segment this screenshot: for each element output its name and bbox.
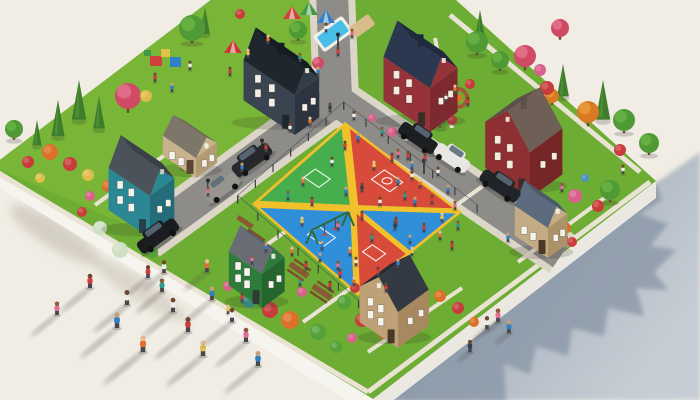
neighborhood-illustration xyxy=(0,0,700,400)
isometric-neighborhood-scene xyxy=(0,0,700,400)
bush-highlight xyxy=(466,80,471,85)
window xyxy=(276,275,281,282)
person-head xyxy=(266,35,269,38)
bush-highlight xyxy=(36,174,41,179)
window xyxy=(448,91,453,98)
person-head xyxy=(436,167,439,170)
person-head xyxy=(360,211,363,214)
front-door xyxy=(253,290,260,304)
person-torso xyxy=(210,291,215,296)
person-head xyxy=(188,61,191,64)
person-torso xyxy=(336,263,339,267)
window xyxy=(408,317,413,324)
bush-highlight xyxy=(283,313,292,322)
person-torso xyxy=(396,151,399,155)
tree-shadow xyxy=(71,119,86,125)
person-head xyxy=(396,149,399,152)
person-torso xyxy=(162,264,167,269)
person-head xyxy=(423,153,426,156)
attic-window xyxy=(377,283,381,288)
window xyxy=(394,71,400,79)
person-head xyxy=(352,277,355,280)
person-head xyxy=(403,191,406,194)
person-torso xyxy=(410,249,413,253)
person-head xyxy=(396,177,399,180)
person-head xyxy=(228,67,231,70)
person-head xyxy=(444,93,447,96)
person-head xyxy=(378,197,381,200)
person-torso xyxy=(228,69,231,73)
person-head xyxy=(153,73,156,76)
person-head xyxy=(304,261,307,264)
person-head xyxy=(240,293,243,296)
person-head xyxy=(288,123,291,126)
window xyxy=(418,310,423,317)
person-torso xyxy=(453,87,456,91)
person-torso xyxy=(403,193,406,197)
round-tree-highlight xyxy=(6,121,16,131)
window xyxy=(117,196,123,204)
person-torso xyxy=(344,189,347,193)
window xyxy=(311,98,316,105)
front-door xyxy=(282,115,289,129)
attic-window xyxy=(271,254,275,259)
person-head xyxy=(370,233,373,236)
person-torso xyxy=(328,283,331,287)
bush-highlight xyxy=(535,65,541,71)
person-head xyxy=(406,151,409,154)
window xyxy=(394,87,400,95)
person-torso xyxy=(290,249,293,253)
front-door xyxy=(388,329,395,343)
person-torso xyxy=(438,233,441,237)
front-door xyxy=(418,112,425,126)
person-head xyxy=(301,177,304,180)
window xyxy=(438,98,443,105)
person-head xyxy=(438,231,441,234)
window xyxy=(268,281,273,288)
bush-highlight xyxy=(78,208,83,213)
person-torso xyxy=(318,255,321,259)
window xyxy=(495,152,501,160)
person-torso xyxy=(440,215,443,219)
bush-highlight xyxy=(236,10,241,15)
person-head xyxy=(170,83,173,86)
person-head xyxy=(390,153,393,156)
bush-highlight xyxy=(224,282,229,287)
window xyxy=(560,229,565,236)
person-head xyxy=(286,191,289,194)
window xyxy=(169,151,175,159)
tree-shadow xyxy=(595,119,610,125)
person-head xyxy=(328,281,331,284)
window xyxy=(302,104,307,111)
chimney xyxy=(418,34,424,46)
window xyxy=(507,144,513,152)
person-head xyxy=(336,261,339,264)
person-torso xyxy=(350,31,353,35)
person-head xyxy=(206,187,209,190)
window xyxy=(406,79,412,87)
blossom-highlight xyxy=(313,58,320,65)
person-torso xyxy=(170,302,175,308)
person-torso xyxy=(255,356,261,362)
person-torso xyxy=(444,95,447,99)
person-torso xyxy=(87,278,92,284)
person-head xyxy=(264,243,267,246)
person-head xyxy=(336,47,339,50)
bush-highlight xyxy=(141,91,147,97)
person-torso xyxy=(316,69,319,73)
person-torso xyxy=(301,179,304,183)
person-head xyxy=(372,161,375,164)
window xyxy=(255,75,261,83)
person-head xyxy=(560,183,563,186)
person-torso xyxy=(406,153,409,157)
person-torso xyxy=(496,313,501,318)
person-head xyxy=(246,49,249,52)
person-torso xyxy=(376,269,379,273)
person-torso xyxy=(466,99,469,103)
person-head xyxy=(456,221,459,224)
person-torso xyxy=(328,105,331,109)
bush-highlight xyxy=(103,181,109,187)
person-torso xyxy=(160,283,165,288)
person-head xyxy=(308,117,311,120)
person-head xyxy=(430,195,433,198)
round-tree-highlight xyxy=(492,52,502,62)
person-head xyxy=(621,165,624,168)
person-torso xyxy=(450,243,453,247)
person-head xyxy=(88,274,93,279)
person-torso xyxy=(250,257,253,261)
round-tree-highlight xyxy=(290,22,300,32)
window xyxy=(128,188,134,196)
attic-window xyxy=(442,58,446,63)
person-torso xyxy=(408,237,411,241)
person-head xyxy=(300,217,303,220)
person-torso xyxy=(304,263,307,267)
person-torso xyxy=(140,341,146,348)
chimney xyxy=(521,97,527,109)
person-head xyxy=(408,235,411,238)
bush-highlight xyxy=(615,145,621,151)
person-torso xyxy=(456,223,459,227)
person-torso xyxy=(423,155,426,159)
person-head xyxy=(506,233,509,236)
attic-window xyxy=(556,209,560,214)
window xyxy=(235,262,241,270)
person-torso xyxy=(298,55,301,59)
window xyxy=(530,232,536,240)
street-lamp-head xyxy=(206,179,210,183)
window xyxy=(235,274,241,282)
front-door xyxy=(187,160,194,174)
round-tree-highlight xyxy=(468,33,480,45)
person-torso xyxy=(390,155,393,159)
window xyxy=(244,268,250,276)
bush-highlight xyxy=(369,115,373,119)
person-head xyxy=(348,247,351,250)
person-head xyxy=(230,308,235,313)
window xyxy=(117,181,123,189)
person-head xyxy=(453,85,456,88)
person-torso xyxy=(485,320,490,325)
person-head xyxy=(114,312,119,317)
person-head xyxy=(466,97,469,100)
person-head xyxy=(356,133,359,136)
bush-highlight xyxy=(312,326,320,334)
person-head xyxy=(496,308,501,313)
person-head xyxy=(422,223,425,226)
bush-highlight xyxy=(435,291,441,297)
window xyxy=(368,311,374,319)
person-torso xyxy=(330,159,333,163)
person-head xyxy=(453,201,456,204)
person-head xyxy=(310,197,313,200)
bush-highlight xyxy=(298,288,303,293)
window xyxy=(178,158,184,166)
person-head xyxy=(343,141,346,144)
person-head xyxy=(160,278,165,283)
person-head xyxy=(396,259,399,262)
person-head xyxy=(507,320,511,324)
person-torso xyxy=(393,223,396,227)
swing-seat xyxy=(322,234,327,236)
person-torso xyxy=(185,322,191,328)
window xyxy=(507,160,513,168)
person-torso xyxy=(352,113,355,117)
bush-highlight xyxy=(114,244,122,252)
person-head xyxy=(171,298,176,303)
person-torso xyxy=(356,135,359,139)
person-torso xyxy=(338,271,341,275)
bush-highlight xyxy=(568,238,573,243)
person-torso xyxy=(205,263,210,268)
person-torso xyxy=(360,213,363,217)
bush-highlight xyxy=(44,146,52,154)
person-torso xyxy=(188,63,191,67)
person-head xyxy=(446,185,449,188)
person-head xyxy=(328,103,331,106)
person-head xyxy=(360,183,363,186)
bush-highlight xyxy=(348,334,353,339)
person-head xyxy=(290,247,293,250)
play-block xyxy=(150,56,162,66)
person-torso xyxy=(226,307,229,311)
person-head xyxy=(440,213,443,216)
person-head xyxy=(162,260,166,264)
blossom-highlight xyxy=(516,46,528,58)
person-torso xyxy=(372,163,375,167)
person-torso xyxy=(380,129,383,133)
person-torso xyxy=(468,344,472,349)
person-head xyxy=(324,23,327,26)
person-head xyxy=(330,157,333,160)
person-torso xyxy=(266,37,269,41)
person-head xyxy=(320,241,323,244)
person-torso xyxy=(370,235,373,239)
person-torso xyxy=(240,165,243,169)
person-head xyxy=(485,316,489,320)
bush-highlight xyxy=(388,128,393,133)
window xyxy=(269,84,275,92)
window xyxy=(378,305,384,313)
person-torso xyxy=(352,279,355,283)
person-legs xyxy=(267,41,270,44)
person-head xyxy=(376,267,379,270)
person-torso xyxy=(396,261,399,265)
bush-highlight xyxy=(569,190,576,197)
person-torso xyxy=(446,187,449,191)
window xyxy=(255,89,261,97)
person-torso xyxy=(246,51,249,55)
person-legs xyxy=(299,59,302,62)
person-torso xyxy=(396,179,399,183)
round-tree-highlight xyxy=(602,182,613,193)
person-torso xyxy=(378,199,381,203)
person-torso xyxy=(430,197,433,201)
person-head xyxy=(418,179,421,182)
person-torso xyxy=(288,125,291,129)
person-legs xyxy=(247,55,250,58)
play-block xyxy=(161,49,170,57)
window xyxy=(552,153,557,160)
person-torso xyxy=(153,75,156,79)
front-door xyxy=(539,240,546,254)
window xyxy=(378,318,384,326)
play-block xyxy=(144,50,151,56)
person-torso xyxy=(410,163,413,167)
person-torso xyxy=(320,243,323,247)
person-torso xyxy=(422,225,425,229)
person-torso xyxy=(298,279,301,283)
window xyxy=(553,234,558,241)
person-torso xyxy=(418,181,421,185)
bush-highlight xyxy=(338,296,345,303)
attic-window xyxy=(205,143,209,148)
chimney xyxy=(278,43,284,55)
person-torso xyxy=(206,189,209,193)
person-head xyxy=(380,127,383,130)
person-torso xyxy=(229,312,234,318)
person-torso xyxy=(336,223,339,227)
round-tree-highlight xyxy=(615,111,627,123)
person-torso xyxy=(621,167,624,171)
person-head xyxy=(205,259,209,263)
person-head xyxy=(55,301,60,306)
person-head xyxy=(384,283,387,286)
person-head xyxy=(350,29,353,32)
person-torso xyxy=(240,295,243,299)
window xyxy=(495,136,501,144)
bush-highlight xyxy=(470,318,475,323)
person-head xyxy=(316,67,319,70)
person-head xyxy=(410,247,413,250)
person-torso xyxy=(170,85,173,89)
person-head xyxy=(354,257,357,260)
person-head xyxy=(264,143,267,146)
street-lamp-head xyxy=(260,139,264,143)
person-head xyxy=(146,265,150,269)
window xyxy=(244,280,250,288)
person-head xyxy=(298,53,301,56)
window xyxy=(128,204,134,212)
bush-highlight xyxy=(86,192,91,197)
person-torso xyxy=(410,173,413,177)
attic-window xyxy=(506,117,510,122)
person-torso xyxy=(413,199,416,203)
person-head xyxy=(244,328,249,333)
person-torso xyxy=(360,185,363,189)
person-head xyxy=(344,187,347,190)
person-head xyxy=(210,286,215,291)
window xyxy=(406,95,412,103)
bush-highlight xyxy=(23,157,29,163)
person-torso xyxy=(310,199,313,203)
intersection xyxy=(318,82,354,118)
person-head xyxy=(226,305,229,308)
person-torso xyxy=(146,269,151,274)
round-tree-highlight xyxy=(641,135,652,146)
person-head xyxy=(240,163,243,166)
round-tree-highlight xyxy=(181,17,195,31)
person-head xyxy=(256,351,261,356)
bush-highlight xyxy=(83,170,89,176)
person-torso xyxy=(507,324,512,329)
person-head xyxy=(250,255,253,258)
person-head xyxy=(393,221,396,224)
person-torso xyxy=(286,193,289,197)
window xyxy=(202,160,207,167)
person-head xyxy=(468,340,472,344)
window xyxy=(166,200,171,207)
window xyxy=(368,298,374,306)
person-torso xyxy=(506,235,509,239)
blossom-highlight xyxy=(552,20,562,30)
person-torso xyxy=(324,25,327,29)
person-torso xyxy=(343,143,346,147)
bush-highlight xyxy=(64,158,71,165)
person-torso xyxy=(354,259,357,263)
person-torso xyxy=(114,317,120,323)
blossom-highlight xyxy=(117,84,131,98)
autumn-highlight xyxy=(579,102,591,114)
person-head xyxy=(298,277,301,280)
bush-highlight xyxy=(331,342,337,348)
bush-highlight xyxy=(94,222,101,229)
person-torso xyxy=(453,203,456,207)
person-torso xyxy=(336,49,339,53)
window xyxy=(157,206,162,213)
window xyxy=(269,99,275,107)
person-torso xyxy=(436,169,439,173)
person-head xyxy=(450,241,453,244)
window xyxy=(540,161,545,168)
bush-highlight xyxy=(582,175,586,179)
person-head xyxy=(336,221,339,224)
window xyxy=(521,226,527,234)
person-torso xyxy=(348,249,351,253)
bush-highlight xyxy=(593,201,599,207)
person-head xyxy=(318,253,321,256)
person-head xyxy=(394,217,397,220)
person-legs xyxy=(337,53,340,56)
person-torso xyxy=(384,285,387,289)
person-head xyxy=(410,161,413,164)
bush-highlight xyxy=(453,303,459,309)
person-torso xyxy=(243,332,248,338)
